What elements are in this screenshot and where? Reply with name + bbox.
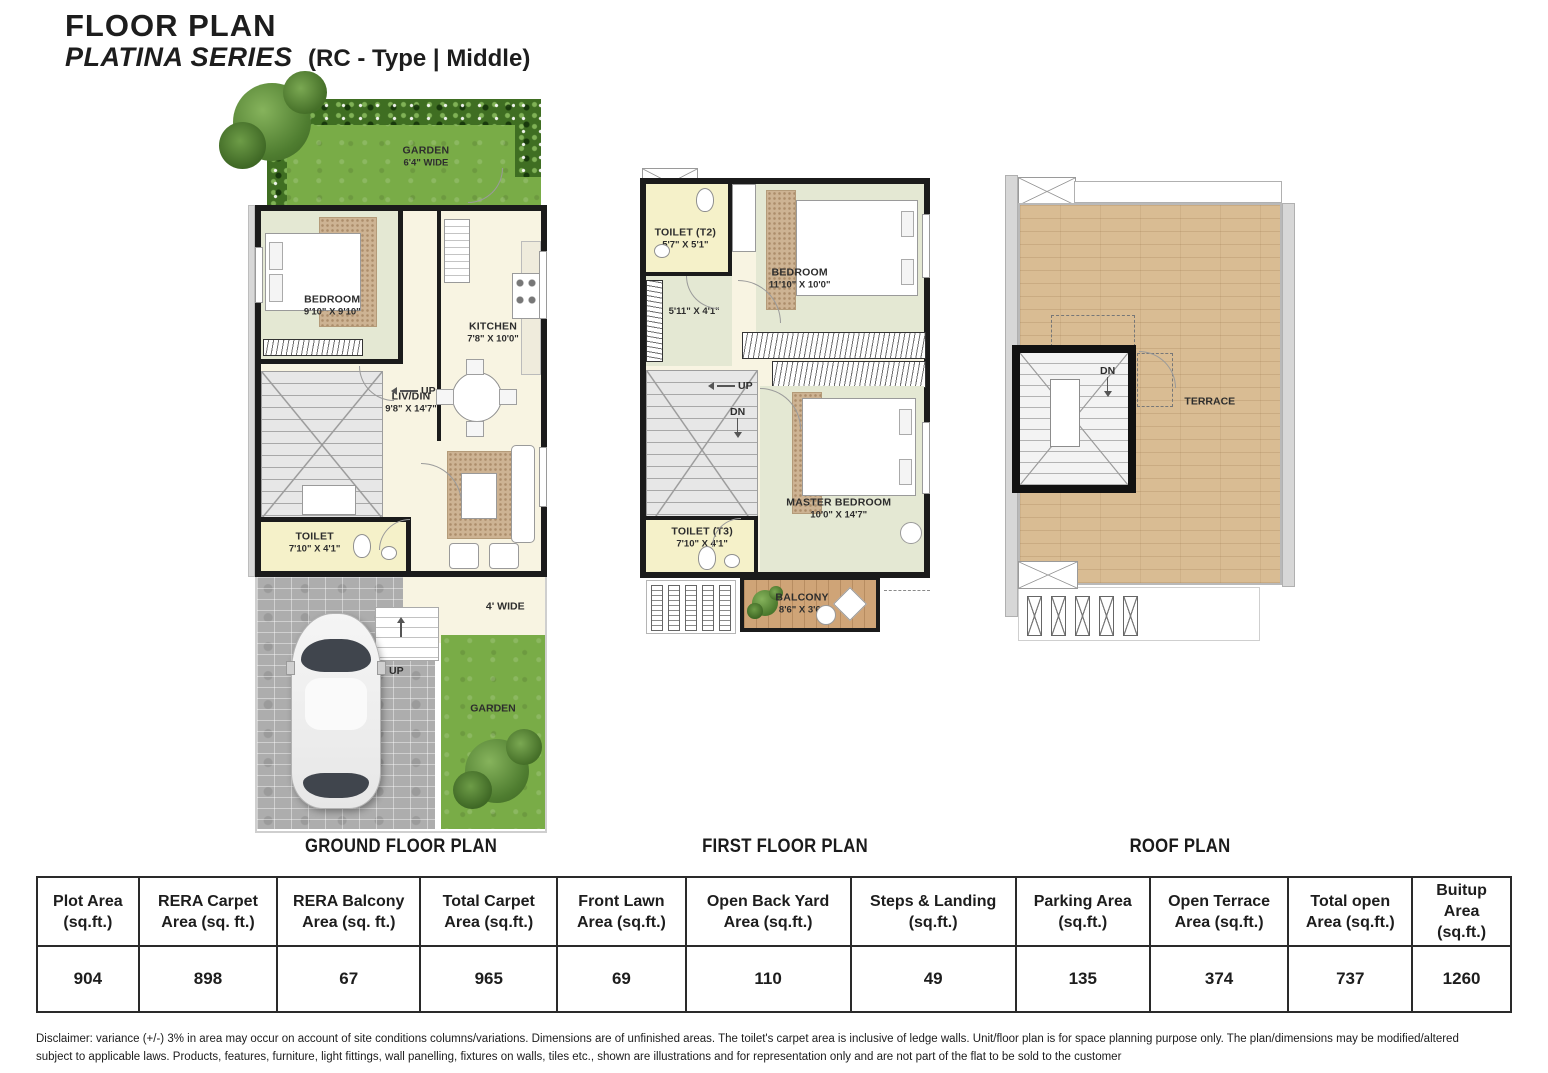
hedge [515,99,541,177]
down-direction: DN [1100,365,1115,401]
entry-steps [375,607,439,661]
col-header: Front Lawn Area (sq.ft.) [557,877,685,946]
area-value: 1260 [1412,946,1511,1012]
stair-well-core [1050,379,1080,447]
car-mirror [377,661,386,675]
car-roof [305,678,367,730]
kitchen-sink [444,219,470,283]
pillow [269,274,283,302]
ground-floor-plan: GARDEN 6'4" WIDE BEDROOM 9'10" X 9'10" [255,95,547,835]
louver [1051,596,1066,636]
col-header: Open Terrace Area (sq.ft.) [1150,877,1289,946]
kitchen-label: KITCHEN 7'8" X 10'0" [467,320,519,345]
roof-plan: TERRACE DN [1005,175,1295,643]
back-garden: GARDEN [441,635,545,829]
area-value: 965 [420,946,557,1012]
louver-row [1027,596,1138,634]
down-arrow-icon [1104,391,1112,401]
wardrobe-strip [772,361,926,388]
series-name: PLATINA SERIES [65,42,293,72]
col-header: Total Carpet Area (sq.ft.) [420,877,557,946]
table-header-row: Plot Area (sq.ft.) RERA Carpet Area (sq.… [37,877,1511,946]
stove [512,273,540,319]
ff-bedroom-label: BEDROOM 11'10" X 10'0" [769,266,831,291]
ff-house: TOILET (T2) 5'7" X 5'1" BEDROOM 11'10" X… [640,178,930,578]
area-value: 110 [686,946,851,1012]
plot-edge [248,205,255,577]
area-value: 49 [851,946,1016,1012]
gf-yard: 4' WIDE UP GARDEN [255,577,547,833]
arrow-shaft [1107,377,1109,391]
arrow-shaft [400,623,402,637]
door-arc [468,168,503,203]
dining-chair [466,359,484,375]
louver [1099,596,1114,636]
area-value: 374 [1150,946,1289,1012]
balcony-table [816,605,836,625]
area-value: 904 [37,946,139,1012]
bed [802,398,916,496]
disclaimer: Disclaimer: variance (+/-) 3% in area ma… [36,1030,1528,1067]
chajja [1018,177,1076,206]
pillow [899,459,912,485]
tree [233,83,311,161]
area-value: 135 [1016,946,1150,1012]
toilet-t2: TOILET (T2) 5'7" X 5'1" [646,184,732,276]
window [922,422,930,494]
louver [685,585,697,631]
down-arrow-icon [734,432,742,442]
gf-staircase [261,371,383,519]
toilet-label: TOILET 7'10" X 4'1" [289,530,341,555]
wc [696,188,714,212]
pouf [900,522,922,544]
type-info: (RC - Type | Middle) [308,45,530,72]
col-header: Parking Area (sq.ft.) [1016,877,1150,946]
roof-edge [1282,203,1295,587]
ff-bedroom: BEDROOM 11'10" X 10'0" [756,184,924,342]
chajja [1018,561,1078,589]
window [539,447,547,507]
up-arrow-icon [397,613,405,623]
col-header: Open Back Yard Area (sq.ft.) [686,877,851,946]
terrace-label: TERRACE [1184,395,1235,408]
balcony-chair [833,587,867,621]
wardrobe [646,280,663,362]
dining-chair [466,421,484,437]
disclaimer-line: Disclaimer: variance (+/-) 3% in area ma… [36,1030,1528,1048]
first-floor-caption: FIRST FLOOR PLAN [657,836,912,860]
dn-label: DN [730,406,745,418]
gf-bedroom: BEDROOM 9'10" X 9'10" [261,211,403,364]
wc [698,546,716,570]
stair-cupboard [302,485,356,515]
roof-ledge [1074,181,1282,203]
balcony-plant [752,590,778,616]
dining-table [452,372,502,422]
dashed-projection [1051,315,1135,347]
shaft-panel [732,184,756,252]
coffee-table [461,473,497,519]
area-value: 898 [139,946,278,1012]
window [539,251,547,319]
pillow [269,242,283,270]
gf-house: BEDROOM 9'10" X 9'10" KITCHEN 7'8" X 10'… [255,205,547,577]
window [255,247,263,303]
armchair [489,543,519,569]
tree [465,739,529,803]
col-header: Plot Area (sq.ft.) [37,877,139,946]
page-subtitle: PLATINA SERIES (RC - Type | Middle) [65,42,530,73]
first-floor-plan: TOILET (T2) 5'7" X 5'1" BEDROOM 11'10" X… [640,178,930,640]
col-header: Total open Area (sq.ft.) [1288,877,1412,946]
floor-plan-page: FLOOR PLAN PLATINA SERIES (RC - Type | M… [0,0,1548,1073]
car-windshield [301,639,371,672]
pillow [899,409,912,435]
wc [353,534,371,558]
arrow-shaft [717,385,735,387]
roof-stairwell [1012,345,1136,493]
bed-rug [766,190,796,310]
wardrobe-strip [742,332,926,359]
window [922,214,930,278]
pillow [901,211,914,237]
basin [724,554,740,568]
master-bedroom-label: MASTER BEDROOM 10'0" X 14'7" [786,496,891,521]
area-value: 737 [1288,946,1412,1012]
dining-chair [436,389,454,405]
wardrobe [263,339,363,356]
louver [1027,596,1042,636]
disclaimer-line: subject to applicable laws. Products, fe… [36,1048,1528,1066]
area-value: 67 [277,946,420,1012]
louver [702,585,714,631]
car-mirror [286,661,295,675]
ground-floor-caption: GROUND FLOOR PLAN [273,836,530,860]
col-header: Buitup Area (sq.ft.) [1412,877,1511,946]
pillow [901,259,914,285]
garden-label: GARDEN 6'4" WIDE [403,145,450,170]
left-arrow-icon [704,382,714,390]
pergola [646,580,736,634]
car [291,613,381,809]
dashed-line [884,590,930,591]
down-direction: DN [730,406,745,442]
toilet-t3: TOILET (T3) 7'10" X 4'1" [646,516,758,572]
louver [668,585,680,631]
dn-label: DN [1100,365,1115,377]
balcony: BALCONY 8'6" X 3'6" [740,576,880,632]
sofa [511,445,535,543]
up-label-entry: UP [389,665,404,677]
area-table: Plot Area (sq.ft.) RERA Carpet Area (sq.… [36,876,1512,1013]
col-header: RERA Balcony Area (sq. ft.) [277,877,420,946]
col-header: RERA Carpet Area (sq. ft.) [139,877,278,946]
col-header: Steps & Landing (sq.ft.) [851,877,1016,946]
armchair [449,543,479,569]
walkway-label: 4' WIDE [486,600,525,613]
back-garden-label: GARDEN [470,702,516,715]
basin [654,244,670,258]
table-value-row: 904 898 67 965 69 110 49 135 374 737 126… [37,946,1511,1012]
area-value: 69 [557,946,685,1012]
roof-plan-caption: ROOF PLAN [1052,836,1307,860]
roof-bottom-ledge [1018,587,1260,641]
dining-chair [499,389,517,405]
up-direction: UP [704,380,753,392]
up-label: UP [738,380,753,392]
page-title: FLOOR PLAN [65,8,277,44]
louver [719,585,731,631]
louver [651,585,663,631]
bedroom-label: BEDROOM 9'10" X 9'10" [304,293,361,318]
ff-staircase [646,370,758,530]
louver [1075,596,1090,636]
car-rear-window [303,773,368,798]
louver [1123,596,1138,636]
arrow-shaft [737,418,739,432]
up-direction [397,613,405,637]
